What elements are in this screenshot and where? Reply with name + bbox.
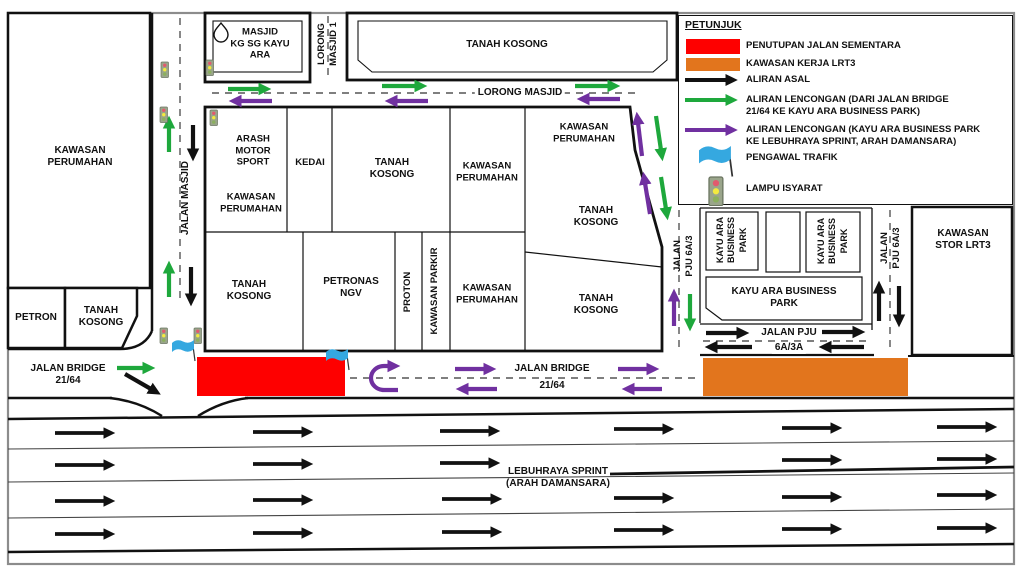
- legend-item-traffic-marshal: PENGAWAL TRAFIK: [746, 152, 838, 164]
- legend-item-original-flow: ALIRAN ASAL: [746, 74, 810, 86]
- label-tanah-kosong-e2: TANAH KOSONG: [574, 293, 618, 317]
- label-jalan-bridge-2: 21/64: [536, 380, 567, 392]
- label-kawasan-perumahan-nw: KAWASAN PERUMAHAN: [48, 145, 113, 169]
- label-kawasan-perumahan-ne: KAWASAN PERUMAHAN: [553, 121, 615, 144]
- label-kawasan-perumahan-arash: KAWASAN PERUMAHAN: [220, 191, 282, 214]
- legend: PETUNJUK PENUTUPAN JALAN SEMENTARA KAWAS…: [678, 15, 1013, 205]
- label-masjid: MASJID KG SG KAYU ARA: [230, 27, 289, 62]
- lrt3-work-orange-zone: [703, 358, 908, 396]
- label-kawasan-perumahan-c4b: KAWASAN PERUMAHAN: [456, 282, 518, 305]
- legend-item-closure: PENUTUPAN JALAN SEMENTARA: [746, 40, 901, 52]
- label-arash-motor-sport: ARASH MOTOR SPORT: [235, 134, 270, 169]
- label-petronas-ngv: PETRONAS NGV: [323, 276, 379, 300]
- label-petron: PETRON: [15, 312, 57, 324]
- label-lorong-masjid-1: LORONG MASJID 1: [316, 22, 340, 66]
- traffic-diversion-map: KAWASAN PERUMAHAN PETRON TANAH KOSONG MA…: [0, 0, 1024, 576]
- label-kayu-ara-bp-v1: KAYU ARA BUSINESS PARK: [715, 217, 749, 263]
- label-tanah-kosong-sw: TANAH KOSONG: [79, 305, 123, 329]
- label-jalan-pju-6a3a-2: 6A/3A: [772, 342, 806, 354]
- label-lebuhraya-sprint: LEBUHRAYA SPRINT (ARAH DAMANSARA): [506, 466, 610, 490]
- legend-item-work-area: KAWASAN KERJA LRT3: [746, 58, 855, 70]
- label-jalan-bridge-west: JALAN BRIDGE 21/64: [30, 363, 105, 387]
- label-proton: PROTON: [402, 272, 414, 312]
- label-tanah-kosong-c: TANAH KOSONG: [370, 157, 414, 181]
- label-kedai: KEDAI: [295, 157, 325, 169]
- label-tanah-kosong-s: TANAH KOSONG: [227, 279, 271, 303]
- label-tanah-kosong-top: TANAH KOSONG: [466, 39, 547, 51]
- label-tanah-kosong-e1: TANAH KOSONG: [574, 205, 618, 229]
- label-kayu-ara-bp-v2: KAYU ARA BUSINESS PARK: [816, 218, 850, 264]
- legend-orange-swatch: [686, 58, 740, 71]
- label-jalan-pju-6a3a-1: JALAN PJU: [761, 327, 817, 339]
- legend-item-purple-diversion: ALIRAN LENCONGAN (KAYU ARA BUSINESS PARK…: [746, 124, 980, 148]
- label-kawasan-stor-lrt3: KAWASAN STOR LRT3: [935, 228, 990, 252]
- legend-red-swatch: [686, 39, 740, 54]
- label-kawasan-parkir: KAWASAN PARKIR: [429, 248, 441, 335]
- label-kawasan-perumahan-c4a: KAWASAN PERUMAHAN: [456, 160, 518, 183]
- label-jalan-pju-6a3-left: JALAN PJU 6A/3: [672, 235, 696, 276]
- label-jalan-pju-6a3-right: JALAN PJU 6A/3: [879, 227, 903, 268]
- label-jalan-masjid: JALAN MASJID: [180, 161, 193, 235]
- road-closure-red-zone: [197, 357, 345, 396]
- block-kayu-ara-bp-2: [766, 212, 800, 272]
- label-kayu-ara-bp-main: KAYU ARA BUSINESS PARK: [731, 286, 836, 310]
- label-jalan-bridge-1: JALAN BRIDGE: [511, 363, 592, 375]
- legend-item-green-diversion: ALIRAN LENCONGAN (DARI JALAN BRIDGE 21/6…: [746, 94, 949, 118]
- legend-item-traffic-light: LAMPU ISYARAT: [746, 183, 823, 195]
- label-lorong-masjid: LORONG MASJID: [475, 87, 565, 99]
- legend-title: PETUNJUK: [685, 19, 742, 31]
